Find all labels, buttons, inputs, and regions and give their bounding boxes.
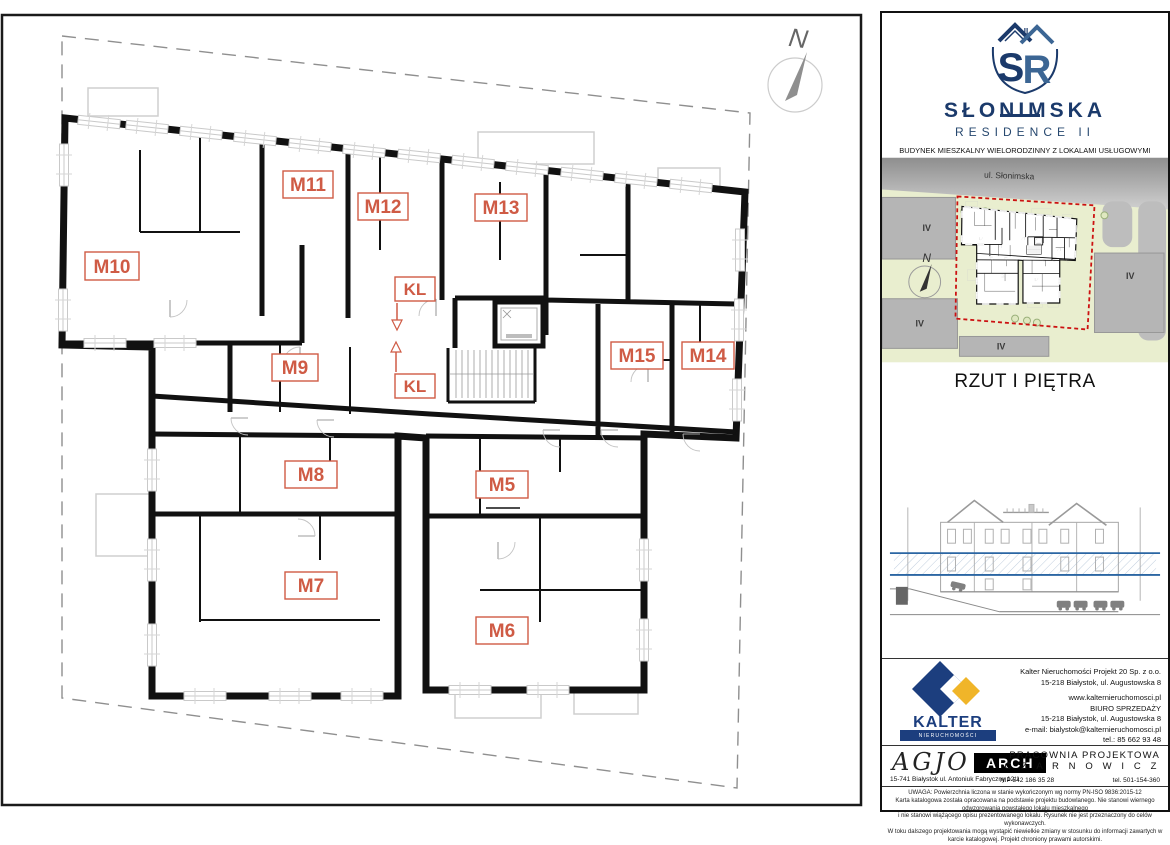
unit-label-m14: M14	[682, 342, 734, 369]
neighbor-block	[1095, 253, 1165, 332]
svg-text:M5: M5	[489, 475, 516, 496]
svg-text:M15: M15	[619, 346, 656, 367]
office-phone: tel. 501-154-360	[1113, 777, 1160, 784]
svg-text:M7: M7	[298, 576, 324, 597]
highlight-floor-band	[894, 554, 1156, 574]
svg-text:M6: M6	[489, 621, 515, 642]
unit-label-m15: M15	[611, 342, 663, 369]
building-section	[882, 479, 1168, 657]
design-office-line2: C Z A R N O W I C Z	[1005, 761, 1161, 772]
developer-line: BIURO SPRZEDAŻY	[1020, 704, 1161, 715]
floor-plan-sheet: M10 M11 M12 M13 M9 M15 M14 M8 M5 M7 M6 K…	[0, 0, 870, 820]
driveway	[1102, 201, 1132, 247]
brand-monogram-icon: II S R	[977, 17, 1073, 95]
svg-text:M9: M9	[282, 358, 308, 379]
unit-label-m6: M6	[476, 617, 528, 644]
developer-email[interactable]: e-mail: bialystok@kalternieruchomosci.pl	[1020, 725, 1161, 736]
developer-phone: tel.: 85 662 93 48	[1020, 735, 1161, 746]
unit-label-m12: M12	[358, 193, 408, 220]
kalter-logo-icon	[900, 661, 996, 717]
block-label: IV	[997, 341, 1005, 351]
svg-text:N: N	[922, 251, 931, 265]
developer-line: 15-218 Białystok, ul. Augustowska 8	[1020, 714, 1161, 725]
svg-text:M10: M10	[94, 257, 131, 278]
disclaimer: UWAGA: Powierzchnia liczona w stanie wyk…	[882, 786, 1168, 845]
developer-line: 15-218 Białystok, ul. Augustowska 8	[1020, 678, 1161, 689]
developer-block: KALTER nieruchomości Kalter Nieruchomośc…	[882, 658, 1168, 746]
svg-text:M8: M8	[298, 465, 324, 486]
brand-header: II S R SŁONIMSKA RESIDENCE II BUDYNEK MI…	[882, 13, 1168, 155]
unit-label-m13: M13	[475, 194, 527, 221]
block-label: IV	[922, 223, 930, 233]
architects-block: AGJO ARCH 15-741 Białystok ul. Antoniuk …	[882, 745, 1168, 787]
svg-text:KL: KL	[404, 280, 427, 299]
block-label: IV	[916, 319, 924, 329]
unit-label-m11: M11	[283, 171, 333, 198]
unit-label-m9: M9	[272, 354, 318, 381]
info-panel: II S R SŁONIMSKA RESIDENCE II BUDYNEK MI…	[880, 11, 1170, 812]
office-nip: NIP 542 186 35 28	[1000, 777, 1054, 784]
building-description: BUDYNEK MIESZKALNY WIELORODZINNY Z LOKAL…	[882, 146, 1168, 156]
brand-name: SŁONIMSKA	[882, 100, 1168, 121]
svg-text:M14: M14	[690, 346, 727, 367]
site-map: ul. Słonimska IV IV IV IV N	[882, 157, 1168, 363]
svg-text:R: R	[1023, 48, 1052, 92]
floor-title: RZUT I PIĘTRA	[882, 371, 1168, 393]
svg-text:KL: KL	[404, 377, 427, 396]
svg-text:M12: M12	[365, 197, 402, 218]
design-office-line1: PRACOWNIA PROJEKTOWA	[1009, 750, 1160, 761]
unit-label-m8: M8	[285, 461, 337, 488]
disclaimer-line: i nie stanowi wiążącego opisu prezentowa…	[882, 813, 1168, 829]
unit-label-m10: M10	[85, 252, 139, 280]
agjo-logo: AGJO	[892, 748, 970, 776]
svg-text:M13: M13	[483, 198, 520, 219]
unit-label-m7: M7	[285, 572, 337, 599]
svg-text:S: S	[998, 46, 1025, 90]
disclaimer-line: UWAGA: Powierzchnia liczona w stanie wyk…	[882, 790, 1168, 798]
building-plan	[55, 88, 748, 718]
site-building-footprint	[960, 201, 1077, 307]
developer-line: Kalter Nieruchomości Projekt 20 Sp. z o.…	[1020, 667, 1161, 678]
developer-website[interactable]: www.kalternieruchomosci.pl	[1020, 693, 1161, 704]
disclaimer-line: W toku dalszego projektowania mogą wystą…	[882, 829, 1168, 845]
brand-residence: RESIDENCE II	[882, 126, 1168, 138]
developer-contact: Kalter Nieruchomości Projekt 20 Sp. z o.…	[1020, 667, 1161, 746]
svg-text:M11: M11	[290, 175, 326, 196]
street-label: ul. Słonimska	[984, 170, 1035, 182]
svg-text:II: II	[1024, 27, 1028, 36]
disclaimer-line: Karta katalogowa została opracowana na p…	[882, 798, 1168, 814]
brand-underline	[1000, 114, 1040, 117]
kalter-tagline: nieruchomości	[900, 730, 996, 741]
block-label: IV	[1126, 271, 1134, 281]
neighbor-block	[882, 197, 955, 259]
